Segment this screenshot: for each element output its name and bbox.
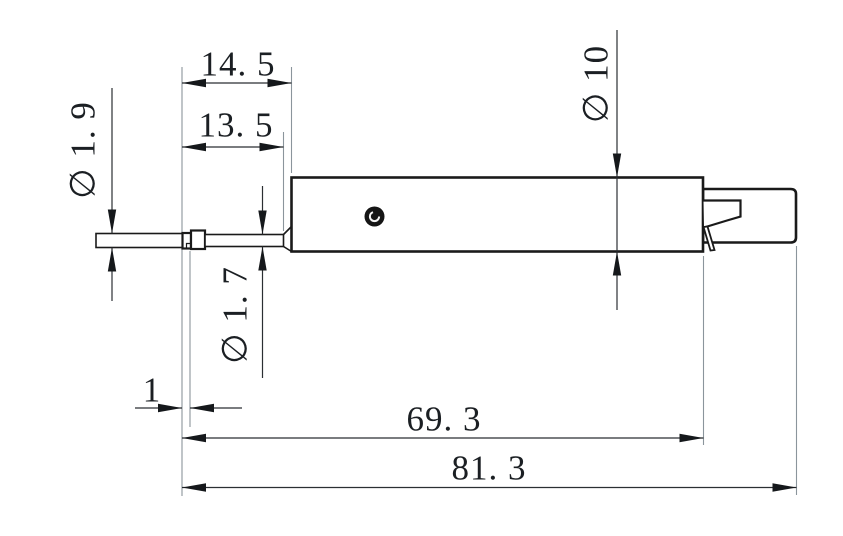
arrow-dia-10-down xyxy=(613,154,621,178)
extension-lines xyxy=(182,67,797,496)
dim-label-body-length: 69. 3 xyxy=(407,402,482,437)
arrow-81-3-right xyxy=(773,483,797,491)
probe-drawing-svg xyxy=(0,0,843,536)
arrow-81-3-left xyxy=(182,483,206,491)
arrow-69-3-right xyxy=(680,434,704,442)
dim-label-collar-width: 1 xyxy=(143,373,162,408)
arrow-dia-1-7-down xyxy=(258,211,266,235)
dim-label-bare-fiber-length: 13. 5 xyxy=(199,108,274,143)
screw-icon xyxy=(365,207,385,227)
fiber-sleeve-outline xyxy=(205,235,284,247)
arrow-dia-1-7-up xyxy=(258,247,266,271)
arrow-dia-1-9-down xyxy=(108,210,116,234)
probe-body-outline xyxy=(292,178,704,252)
part-geometry xyxy=(96,178,796,252)
fiber-tip-outline xyxy=(96,234,183,248)
dim-label-overall-length: 81. 3 xyxy=(452,451,527,486)
drawing-canvas: 14. 5 13. 5 ∅ 1. 9 ∅ 1. 7 ∅ 10 1 69. 3 8… xyxy=(0,0,843,536)
collar-large-outline xyxy=(191,231,205,250)
arrow-1-left xyxy=(158,404,182,412)
arrow-dia-1-9-up xyxy=(108,248,116,272)
dim-label-body-diameter: ∅ 10 xyxy=(579,45,614,123)
dim-label-tip-diameter: ∅ 1. 9 xyxy=(66,101,101,199)
arrow-1-right xyxy=(190,404,214,412)
arrow-dia-10-up xyxy=(613,252,621,276)
arrow-69-3-left xyxy=(182,434,206,442)
dim-label-fiber-diameter: ∅ 1. 7 xyxy=(218,266,253,364)
dim-label-tip-to-body-face: 14. 5 xyxy=(201,47,276,82)
